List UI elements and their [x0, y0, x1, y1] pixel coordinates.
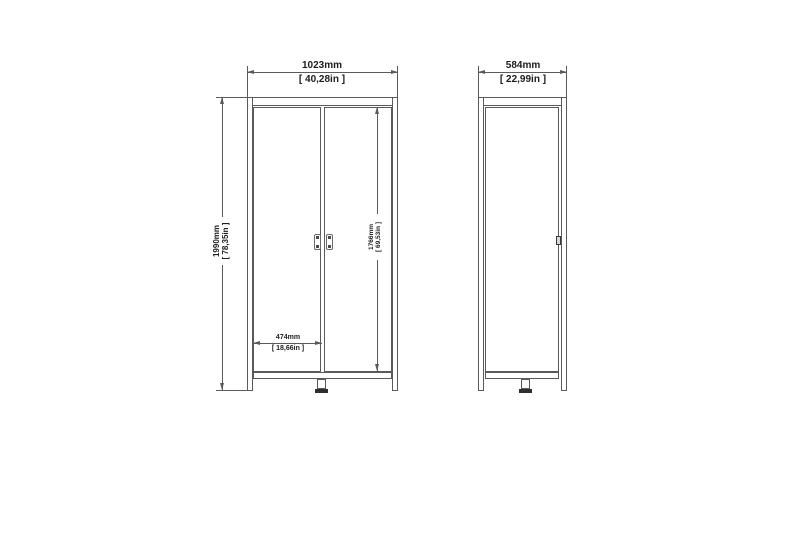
side-top-panel: [478, 97, 567, 106]
front-width-label-mm: 1023mm: [272, 60, 372, 72]
side-depth-label-mm: 584mm: [473, 60, 573, 72]
front-height-dim-label: 1990mm [ 78,35in ]: [212, 217, 230, 265]
side-body-panel: [485, 107, 559, 372]
door-height-label-inches: [ 69,53in ]: [375, 222, 382, 252]
handle-cap-icon: [316, 245, 319, 248]
wardrobe-dimension-drawing: 1023mm [ 40,28in ] 1990mm [ 78,35in ]: [0, 0, 800, 533]
door-height-label-mm: 1766mm: [368, 224, 375, 250]
front-height-label-inches: [ 78,35in ]: [221, 223, 230, 260]
handle-cap-icon: [316, 236, 319, 239]
front-bottom-rail: [253, 372, 392, 379]
side-depth-label-inches: [ 22,99in ]: [473, 74, 573, 86]
front-width-arrow-right-icon: [391, 70, 398, 74]
handle-cap-icon: [328, 245, 331, 248]
side-depth-dimension-line: [478, 72, 567, 73]
side-back-panel: [478, 97, 484, 391]
door-width-label-mm: 474mm: [248, 334, 328, 342]
door-width-dimension-line: [253, 343, 322, 344]
door-height-arrow-down-icon: [375, 364, 379, 371]
front-height-arrow-up-icon: [220, 97, 224, 104]
front-right-side-panel: [392, 97, 398, 391]
front-width-dimension-line: [247, 72, 398, 73]
side-center-foot: [519, 389, 532, 393]
front-width-arrow-left-icon: [247, 70, 254, 74]
front-center-foot: [315, 389, 328, 393]
left-door: [253, 107, 321, 372]
door-height-arrow-up-icon: [375, 107, 379, 114]
side-front-stile: [561, 97, 567, 391]
door-width-label-inches: [ 18,66in ]: [248, 345, 328, 353]
door-height-dim-label: 1766mm [ 69,53in ]: [368, 214, 382, 260]
side-center-leg: [521, 379, 530, 389]
side-bottom-rail: [485, 372, 559, 379]
front-width-label-inches: [ 40,28in ]: [272, 74, 372, 86]
left-door-handle: [314, 234, 321, 250]
front-height-arrow-down-icon: [220, 383, 224, 390]
right-door-handle: [326, 234, 333, 250]
handle-cap-icon: [328, 236, 331, 239]
front-height-label-mm: 1990mm: [212, 225, 221, 257]
side-door-handle: [556, 236, 561, 245]
front-center-leg: [317, 379, 326, 389]
front-top-panel: [247, 97, 398, 106]
